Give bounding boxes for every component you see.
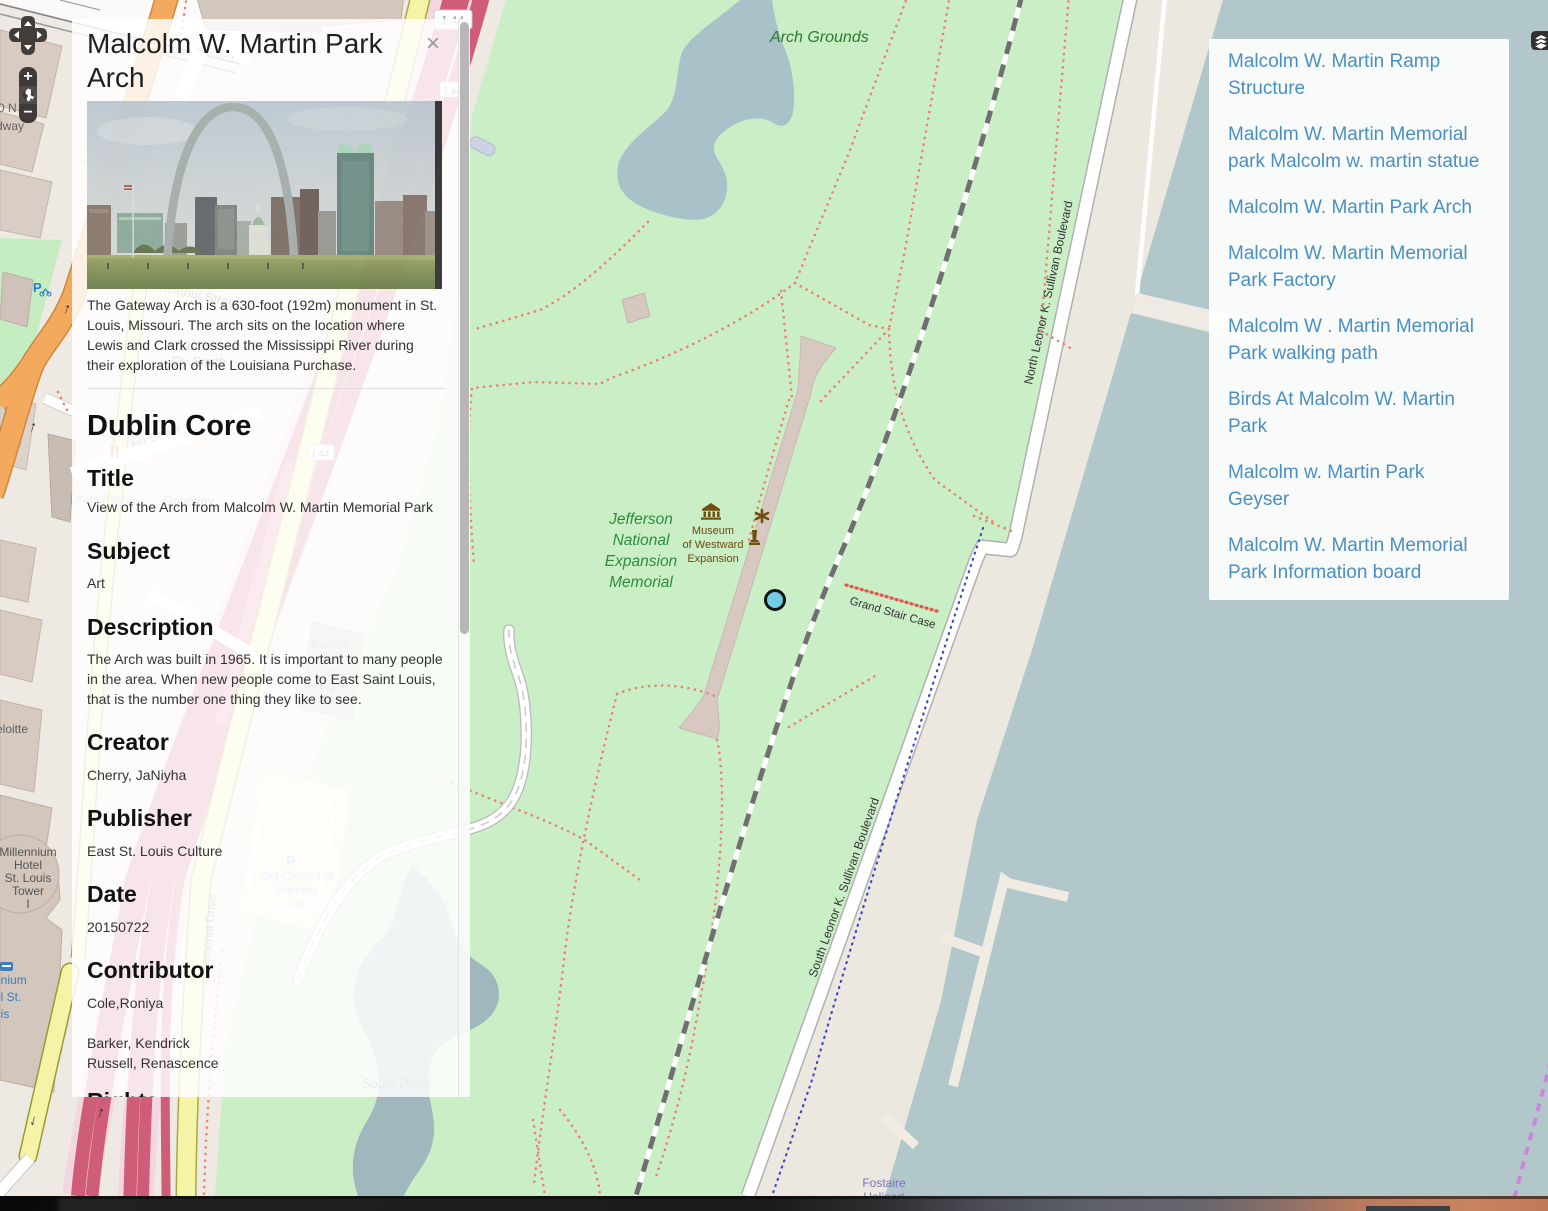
svg-text:Jefferson: Jefferson bbox=[608, 511, 673, 528]
svg-text:Expansion: Expansion bbox=[687, 553, 738, 565]
svg-text:National: National bbox=[613, 532, 670, 549]
svg-text:Memorial: Memorial bbox=[609, 574, 673, 591]
svg-text:Millennium: Millennium bbox=[0, 845, 57, 859]
svg-text:nnium: nnium bbox=[0, 973, 27, 987]
svg-text:el St.: el St. bbox=[0, 990, 21, 1004]
svg-text:I: I bbox=[26, 897, 29, 911]
svg-text:Expansion: Expansion bbox=[605, 553, 677, 570]
svg-text:Arch Grounds: Arch Grounds bbox=[769, 29, 869, 46]
svg-text:Fostaire: Fostaire bbox=[862, 1176, 906, 1190]
svg-text:0 N: 0 N bbox=[0, 101, 17, 115]
svg-text:Museum: Museum bbox=[692, 525, 734, 537]
svg-text:uis: uis bbox=[0, 1007, 9, 1021]
svg-text:eloitte: eloitte bbox=[0, 722, 28, 736]
svg-text:Hotel: Hotel bbox=[14, 858, 42, 872]
svg-text:St. Louis: St. Louis bbox=[5, 871, 52, 885]
svg-text:of Westward: of Westward bbox=[683, 539, 744, 551]
svg-text:Tower: Tower bbox=[12, 884, 44, 898]
